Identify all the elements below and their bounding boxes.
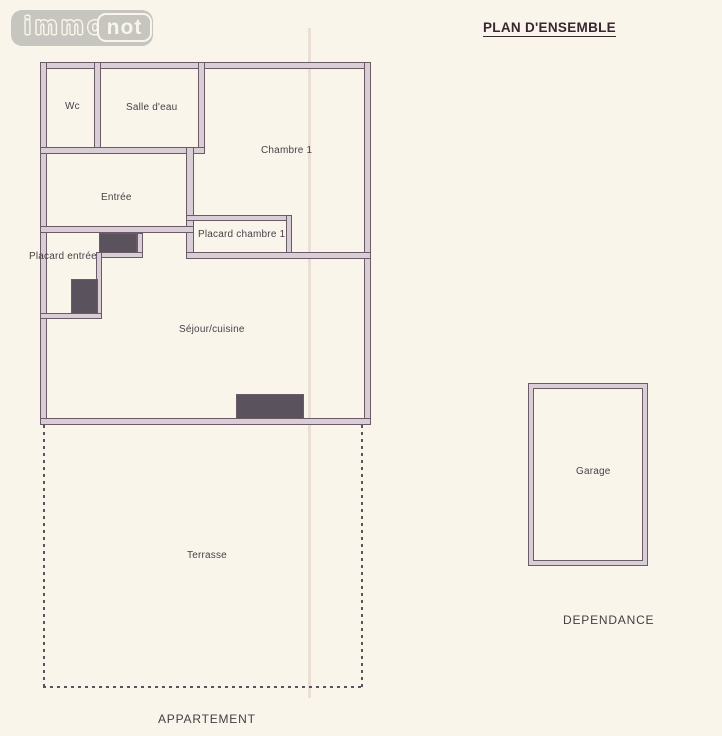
room-label-entree: Entrée [101,192,132,203]
wall-wc-salledeau [94,62,101,154]
wall-entree-chambre1 [186,147,194,259]
fixture-fill-sejour [236,394,304,419]
apartment-outer-wall-bottom [40,418,371,425]
room-label-wc: Wc [65,101,80,112]
logo-not-badge: not [97,13,152,42]
wall-entree-bottom [40,226,194,233]
room-label-garage: Garage [576,466,611,477]
wall-placard-chambre1-top [186,215,292,221]
room-label-sejour-cuisine: Séjour/cuisine [179,324,245,335]
apartment-outer-wall-top [40,62,371,69]
immonot-logo: immo not [11,10,153,46]
room-label-salle-deau: Salle d'eau [126,102,177,113]
page-title: PLAN D'ENSEMBLE [483,20,616,37]
wall-salledeau-chambre1 [198,62,205,154]
room-label-placard-chambre-1: Placard chambre 1 [198,229,285,240]
room-label-terrasse: Terrasse [187,550,227,561]
apartment-outer-wall-left [40,62,47,425]
closet-fill-entree-top [99,233,137,253]
room-label-placard-entree: Placard entrée [29,251,97,262]
closet-fill-entree-left [71,279,98,314]
terrasse-dashed-bottom [43,686,363,688]
terrasse-dashed-left [43,425,45,687]
wall-chambre1-bottom [186,252,371,259]
section-label-dependance: DEPENDANCE [563,613,654,627]
scan-fold-line [308,28,311,698]
room-label-chambre-1: Chambre 1 [261,145,312,156]
floor-plan-page: immo not PLAN D'ENSEMBLE Wc Salle d'eau … [0,0,722,736]
apartment-outer-wall-right [364,62,371,425]
terrasse-dashed-right [361,425,363,687]
wall-below-wc-salledeau [40,147,205,154]
logo-immo-text: immo [24,12,107,41]
section-label-appartement: APPARTEMENT [158,712,256,726]
